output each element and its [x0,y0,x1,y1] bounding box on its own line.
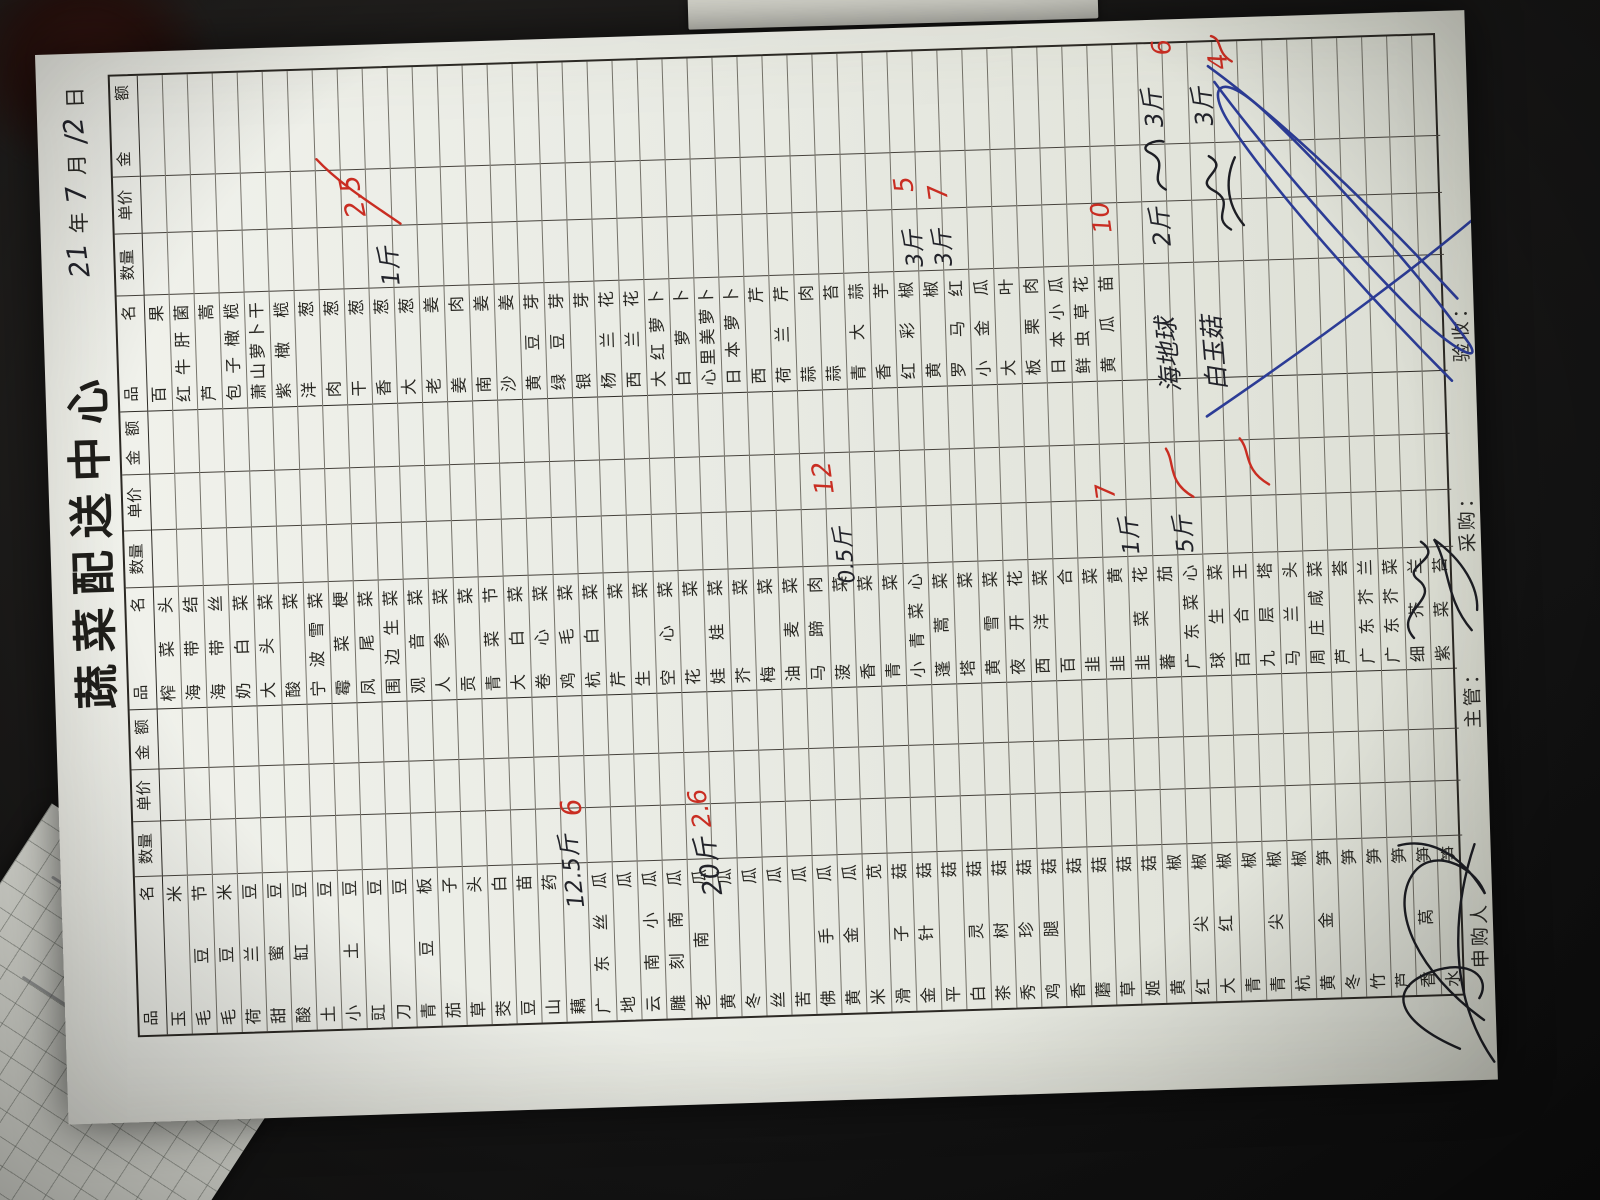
qty-cell [186,819,212,874]
amount-cell [1323,373,1349,437]
item-name-cell: 秀珍菇 [1012,848,1041,1008]
item-name-cell: 贡菜 [454,576,482,699]
price-cell [934,743,960,796]
price-cell [1084,739,1110,792]
price-cell [1184,736,1210,789]
date-handwritten-value: /2 [58,116,92,146]
qty-cell [467,222,493,284]
handwritten-value: 海地球 [1146,316,1188,394]
qty-cell [727,511,753,568]
price-cell [234,765,260,818]
amount-cell [357,702,383,762]
amount-cell [962,49,989,149]
item-name-cell: 鸡腿菇 [1037,847,1066,1007]
item-name-cell: 百果 [145,294,173,410]
amount-cell [373,402,399,466]
red-handwritten-value: 12 [807,459,841,496]
handwritten-value: 0.5斤 [824,525,862,585]
item-name-cell: 红牛肝菌 [170,293,198,409]
price-cell [984,742,1010,795]
qty-cell [1192,199,1218,261]
price-cell [784,748,810,801]
qty-cell [202,527,228,584]
amount-cell [208,706,234,766]
item-name-cell: 甜蜜豆 [263,871,292,1031]
item-name-cell: 鸡毛菜 [554,573,582,696]
amount-cell [1432,668,1459,728]
price-cell [1034,740,1060,793]
footer-label: 申购人 [1464,902,1493,969]
item-name-cell: 九层塔 [1253,551,1281,674]
amount-cell [782,688,808,748]
item-name-cell: 杨兰花 [594,280,622,396]
item-name-cell: 姜肉 [444,285,472,401]
qty-cell [517,220,543,282]
amount-cell [648,394,674,458]
amount-cell [1382,670,1408,730]
item-name-cell: 竹笋 [1362,837,1391,997]
item-name-cell: 马兰头 [1278,550,1306,673]
price-cell [1400,434,1426,490]
qty-cell [677,512,703,569]
qty-cell [236,817,262,872]
amount-cell [233,706,259,766]
item-name-cell: 豆苗 [513,863,542,1023]
qty-cell [1392,193,1418,255]
price-cell [509,757,535,810]
amount-cell [273,406,299,470]
price-cell [641,159,667,217]
amount-cell [1157,677,1183,737]
item-name-cell: 雕刻南瓜 [663,859,692,1019]
amount-cell [213,73,240,173]
amount-cell [798,389,824,453]
item-name-cell: 沙姜 [494,283,522,399]
price-cell [1059,739,1085,792]
amount-cell [488,64,515,164]
price-cell [391,167,417,225]
amount-cell [333,703,359,763]
item-name-cell: 蕃茄 [1153,554,1181,677]
qty-cell [1027,501,1053,558]
price-cell [1375,435,1401,491]
qty-cell [992,206,1018,268]
item-name-cell: 草头 [463,865,492,1025]
item-name-cell: 佛手瓜 [812,854,841,1014]
qty-cell [527,517,553,574]
price-cell [1200,440,1226,496]
amount-cell [1248,375,1274,439]
item-name-cell: 生菜 [629,571,657,694]
qty-cell [402,521,428,578]
amount-cell [1357,670,1383,730]
amount-cell [473,399,499,463]
date-handwritten-value: 7 [60,183,93,204]
amount-cell [1273,374,1299,438]
qty-cell [1217,198,1243,260]
item-name-cell: 肉葱 [319,288,347,404]
qty-cell [911,796,937,851]
amount-cell [637,59,664,159]
price-cell [716,156,742,214]
qty-cell [867,209,893,271]
item-name-cell: 榨菜头 [154,586,182,709]
amount-cell [1337,37,1364,137]
amount-cell [862,52,889,152]
qty-cell [1052,501,1078,558]
amount-cell [1207,675,1233,735]
amount-cell [1398,370,1424,434]
price-cell [1000,446,1026,502]
date-printed-label: 月 [61,154,92,176]
qty-cell [1326,492,1352,549]
qty-cell [927,505,953,562]
price-cell [200,472,226,528]
handwritten-value: 2斤 [1139,206,1178,249]
qty-cell [418,224,444,286]
sheet-smudge [22,976,67,1007]
amount-cell [732,690,758,750]
amount-cell [937,50,964,150]
qty-cell [1311,783,1337,838]
amount-cell [1298,373,1324,437]
price-cell [1300,437,1326,493]
amount-cell [912,51,939,151]
item-name-cell: 丝瓜 [763,855,792,1015]
price-cell [1165,142,1191,200]
price-cell [441,165,467,223]
item-name-cell: 云南小瓜 [638,859,667,1019]
amount-cell [998,383,1024,447]
form-title: 蔬菜配送中心 [50,343,127,735]
amount-cell [623,395,649,459]
price-cell [216,172,242,230]
item-name-cell: 百合 [1053,557,1081,680]
qty-cell [836,798,862,853]
price-cell [484,758,510,811]
qty-cell [1301,493,1327,550]
price-cell [1325,436,1351,492]
item-name-cell: 金针菇 [912,851,941,1011]
price-cell [1240,140,1266,198]
amount-cell [1057,680,1083,740]
qty-cell [452,519,478,576]
price-cell [834,747,860,800]
price-cell [1209,735,1235,788]
qty-cell [1077,500,1103,557]
price-cell [191,173,217,231]
qty-cell [717,214,743,276]
column-header-qty: 数量 [115,233,144,296]
item-name-cell: 广东丝瓜 [588,861,617,1021]
price-cell [600,459,626,515]
amount-cell [948,384,974,448]
amount-cell [223,407,249,471]
item-name-cell: 酸缸豆 [288,870,317,1030]
qty-cell [861,798,887,853]
price-cell [1425,433,1452,490]
price-cell [1275,438,1301,494]
qty-cell [877,506,903,563]
price-cell [584,754,610,807]
item-name-cell: 香莴笋 [1412,835,1441,995]
item-name-cell: 青豆板 [413,866,442,1026]
amount-cell [1048,381,1074,445]
price-cell [1050,445,1076,501]
qty-cell [627,514,653,571]
price-cell [691,157,717,215]
amount-cell [707,691,733,751]
amount-cell [457,699,483,759]
qty-cell [436,811,462,866]
item-name-cell: 花菜 [678,569,706,692]
price-cell [666,158,692,216]
item-name-cell: 茭白 [488,864,517,1024]
price-cell [775,454,801,510]
amount-cell [438,66,465,166]
amount-cell [1087,45,1114,145]
amount-cell [607,694,633,754]
price-cell [1140,143,1166,201]
item-name-cell: 黄金瓜 [837,853,866,1013]
qty-cell [211,818,237,873]
price-cell [475,463,501,519]
qty-cell [343,226,369,288]
amount-cell [1332,671,1358,731]
qty-cell [792,212,818,274]
handwritten-value: 1斤 [368,245,407,288]
price-cell [950,448,976,504]
item-name-cell: 洋葱 [295,289,323,405]
price-cell [700,456,726,512]
amount-cell [1182,676,1208,736]
item-name-cell: 观音菜 [404,578,432,701]
item-name-cell: 细芥兰 [1403,546,1431,669]
price-cell [266,171,292,229]
qty-cell [243,229,269,291]
price-cell [759,749,785,802]
amount-cell [887,51,914,151]
item-name-cell: 小青菜心 [903,562,931,685]
qty-cell [752,510,778,567]
item-name-cell: 蓬蒿菜 [928,561,956,684]
price-cell [990,148,1016,206]
price-cell [1125,443,1151,499]
qty-cell [811,799,837,854]
item-name-cell: 萧山萝卜干 [245,291,273,407]
price-cell [400,465,426,521]
amount-cell [573,396,599,460]
qty-cell [1435,779,1462,835]
qty-cell [318,227,344,289]
item-name-cell: 土豆 [313,870,342,1030]
qty-cell [286,816,312,871]
qty-cell [617,217,643,279]
item-name-cell [1319,257,1347,373]
price-cell [334,762,360,815]
price-cell [184,767,210,820]
item-name-cell: 小金瓜 [969,268,997,384]
qty-cell [1236,786,1262,841]
qty-cell [961,794,987,849]
item-name-cell: 紫菜苔 [1428,546,1457,669]
item-name-cell: 芹菜 [604,571,632,694]
date-printed-label: 日 [59,86,90,108]
qty-cell [1242,198,1268,260]
item-name-cell: 荷兰豆 [238,872,267,1032]
amount-cell [532,696,558,756]
amount-cell [1062,46,1089,146]
amount-cell [138,75,165,175]
column-header-qty: 数量 [124,530,153,588]
qty-cell [511,809,537,864]
item-name-cell: 青菜节 [479,575,507,698]
item-name-cell: 香菇 [1062,846,1091,1006]
qty-cell [143,232,169,294]
price-cell [159,768,185,821]
price-cell [1290,138,1316,196]
item-name-cell: 韭菜 [1078,557,1106,680]
qty-cell [1161,788,1187,843]
column-header-price: 单价 [122,474,151,531]
item-name-cell: 日本萝卜 [719,276,747,392]
amount-cell [773,390,799,454]
amount-cell [348,403,374,467]
item-name-cell: 黄豆芽 [519,282,547,398]
qty-cell [817,211,843,273]
item-name-cell: 大红萝卜 [644,278,672,394]
amount-cell [1407,669,1433,729]
amount-cell [298,405,324,469]
qty-cell [193,231,219,293]
amount-cell [463,65,490,165]
item-name-cell: 黄椒 [919,270,947,386]
qty-cell [1186,787,1212,842]
item-name-cell: 大叶 [994,267,1022,383]
item-name-cell: 地瓜 [613,860,642,1020]
amount-cell [1282,673,1308,733]
price-cell [525,461,551,517]
item-name-cell: 青大蒜 [844,272,872,388]
qty-cell [967,206,993,268]
price-cell [725,455,751,511]
item-name-cell: 玉米 [163,874,192,1034]
amount-cell [283,704,309,764]
price-cell [450,464,476,520]
amount-cell [587,61,614,161]
item-name-cell: 百合王 [1228,552,1256,675]
price-cell [1065,145,1091,203]
amount-cell [1387,36,1414,136]
qty-cell [1292,196,1318,258]
amount-cell [1032,681,1058,741]
amount-cell [183,707,209,767]
qty-cell [636,805,662,860]
price-cell [1040,146,1066,204]
item-name-cell: 黄雪菜 [978,560,1006,683]
price-cell [541,162,567,220]
amount-cell [258,705,284,765]
item-name-cell: 蒜苔 [819,273,847,389]
amount-cell [482,698,508,758]
item-name-cell: 青菜 [878,563,906,686]
red-handwritten-value: 10 [1085,200,1118,235]
amount-cell [148,409,174,473]
item-name-cell: 海带丝 [204,584,232,707]
item-name-cell: 梅菜 [753,567,781,690]
price-cell [150,473,176,529]
amount-cell [848,387,874,451]
item-name-cell: 平菇 [937,850,966,1010]
amount-cell [673,393,699,457]
item-name-cell: 青椒 [1237,840,1266,1000]
price-cell [1409,729,1435,782]
price-cell [1250,439,1276,495]
amount-cell [1132,677,1158,737]
price-cell [1259,733,1285,786]
price-cell [209,766,235,819]
item-name-cell: 西洋菜 [1028,558,1056,681]
qty-cell [168,231,194,293]
price-cell [275,469,301,525]
column-header-qty: 数量 [133,820,162,876]
amount-cell [507,697,533,757]
item-name-cell: 刀豆 [388,867,417,1027]
amount-cell [837,53,864,153]
item-name-cell: 包子橄榄 [220,292,248,408]
qty-cell [1351,491,1377,548]
qty-cell [1261,785,1287,840]
item-name-cell: 酸菜 [279,582,307,705]
amount-cell [263,71,290,171]
amount-cell [612,60,639,160]
price-cell [884,745,910,798]
price-cell [925,449,951,505]
price-cell [1315,138,1341,196]
qty-cell [411,812,437,867]
price-cell [965,149,991,207]
qty-cell [1426,489,1453,547]
item-name-cell: 冬瓜 [738,856,767,1016]
qty-cell [577,516,603,573]
item-name-cell: 围边生菜 [379,579,407,702]
qty-cell [592,218,618,280]
qty-cell [1251,494,1277,551]
amount-cell [1307,672,1333,732]
item-name-cell: 人参菜 [429,577,457,700]
amount-cell [1348,372,1374,436]
qty-cell [1342,195,1368,257]
amount-cell [173,409,199,473]
amount-cell [1257,674,1283,734]
item-name-cell: 南姜 [469,284,497,400]
item-name-cell: 干葱 [344,288,372,404]
paper: 蔬菜配送中心 21年7月/2日 品名数量单价金额品名数量单价金额品名数量单价金额… [35,10,1498,1124]
price-cell [325,468,351,524]
qty-cell [1410,780,1436,835]
price-cell [1340,137,1366,195]
amount-cell [787,55,814,155]
price-cell [1109,738,1135,791]
price-cell [516,163,542,221]
item-name-cell: 娃娃菜 [703,568,731,691]
qty-cell [952,504,978,561]
qty-cell [767,213,793,275]
price-cell [434,759,460,812]
item-name-cell [1269,259,1297,375]
amount-cell [873,387,899,451]
qty-cell [602,515,628,572]
